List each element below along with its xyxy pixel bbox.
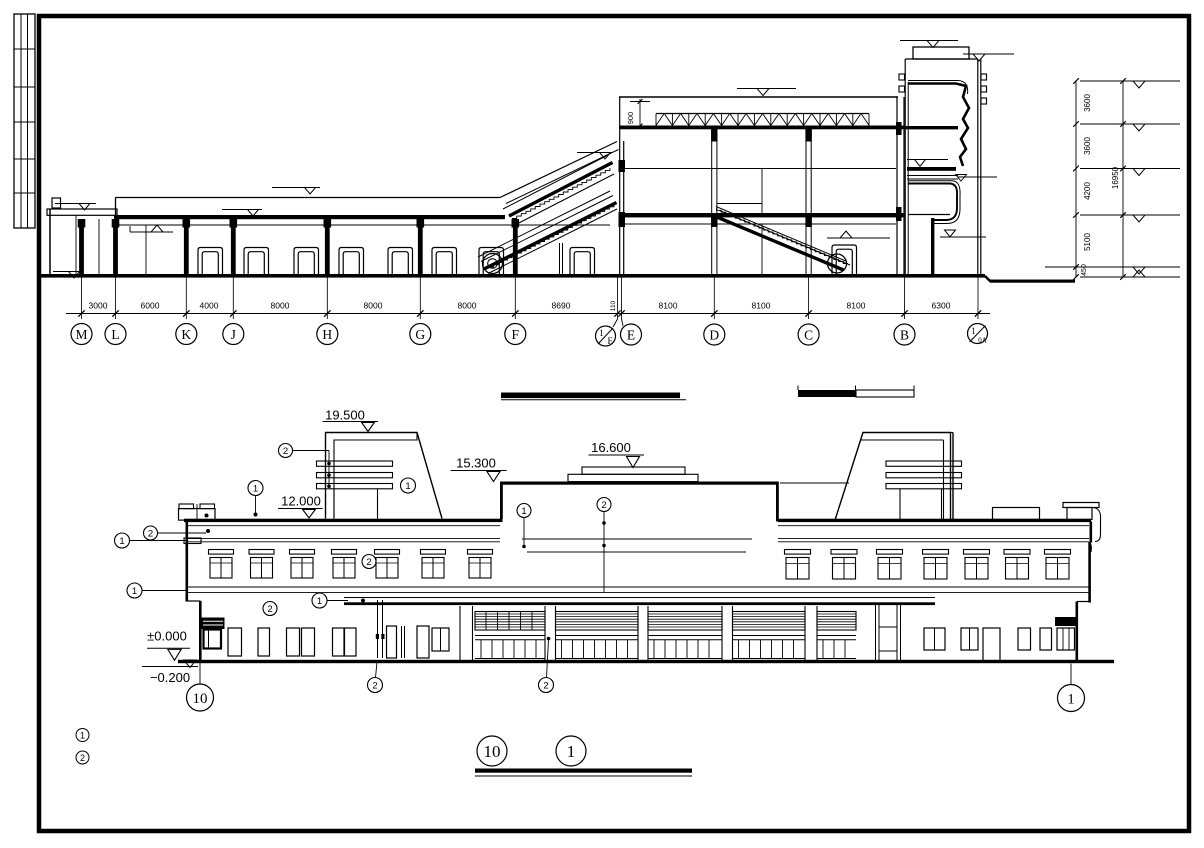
svg-text:E: E xyxy=(627,327,635,342)
svg-text:±0.000: ±0.000 xyxy=(147,629,187,644)
svg-text:8100: 8100 xyxy=(847,301,866,311)
svg-text:1: 1 xyxy=(317,596,322,607)
svg-text:J: J xyxy=(231,327,236,342)
svg-text:8000: 8000 xyxy=(364,301,383,311)
svg-text:4200: 4200 xyxy=(1083,182,1092,200)
svg-text:8100: 8100 xyxy=(659,301,678,311)
svg-text:0A: 0A xyxy=(978,337,987,345)
svg-text:2: 2 xyxy=(372,681,377,692)
svg-text:19.500: 19.500 xyxy=(325,408,365,423)
svg-text:1: 1 xyxy=(599,328,604,338)
svg-text:1: 1 xyxy=(521,506,526,517)
svg-text:D: D xyxy=(709,327,719,342)
svg-text:1: 1 xyxy=(253,484,258,495)
svg-text:2: 2 xyxy=(80,753,85,763)
svg-text:B: B xyxy=(900,327,909,342)
svg-text:4000: 4000 xyxy=(200,301,219,311)
svg-text:1: 1 xyxy=(132,586,137,597)
svg-text:1: 1 xyxy=(971,326,976,336)
svg-text:8000: 8000 xyxy=(458,301,477,311)
svg-text:16950: 16950 xyxy=(1111,166,1120,189)
svg-text:8100: 8100 xyxy=(752,301,771,311)
svg-text:6300: 6300 xyxy=(932,301,951,311)
svg-text:110: 110 xyxy=(610,300,617,311)
svg-text:3600: 3600 xyxy=(1083,137,1092,155)
svg-text:6000: 6000 xyxy=(141,301,160,311)
svg-text:H: H xyxy=(322,327,332,342)
svg-text:−0.200: −0.200 xyxy=(150,670,190,685)
svg-text:2: 2 xyxy=(148,529,153,540)
svg-text:5100: 5100 xyxy=(1083,233,1092,251)
svg-text:K: K xyxy=(181,327,191,342)
svg-text:1: 1 xyxy=(1067,692,1075,708)
svg-text:2: 2 xyxy=(366,557,371,568)
svg-text:G: G xyxy=(415,327,425,342)
svg-text:L: L xyxy=(111,327,119,342)
svg-text:8690: 8690 xyxy=(552,301,571,311)
svg-text:1: 1 xyxy=(567,742,576,761)
svg-text:2: 2 xyxy=(283,446,288,457)
svg-text:15.300: 15.300 xyxy=(456,456,496,471)
svg-text:F: F xyxy=(512,327,520,342)
svg-text:8000: 8000 xyxy=(271,301,290,311)
svg-text:2: 2 xyxy=(267,604,272,615)
svg-text:12.000: 12.000 xyxy=(281,494,321,509)
svg-text:2: 2 xyxy=(543,681,548,692)
svg-text:F: F xyxy=(607,336,612,346)
svg-text:C: C xyxy=(804,327,813,342)
svg-text:900: 900 xyxy=(626,112,635,125)
svg-text:3000: 3000 xyxy=(89,301,108,311)
svg-text:2: 2 xyxy=(601,500,606,511)
svg-text:1: 1 xyxy=(119,536,124,547)
svg-text:10: 10 xyxy=(484,742,501,761)
svg-text:10: 10 xyxy=(193,691,208,707)
svg-text:3600: 3600 xyxy=(1083,94,1092,112)
svg-text:450: 450 xyxy=(1081,264,1088,276)
svg-text:M: M xyxy=(75,327,87,342)
svg-text:16.600: 16.600 xyxy=(591,440,631,455)
svg-text:1: 1 xyxy=(80,731,85,741)
svg-text:1: 1 xyxy=(405,481,410,492)
